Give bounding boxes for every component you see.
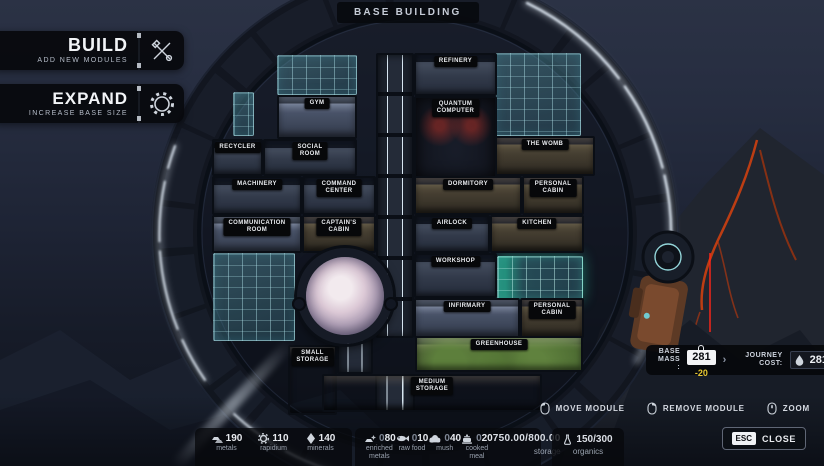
journey-cost-label: JOURNEY COST: (745, 352, 782, 368)
module-label-workshop: WORKSHOP (431, 256, 480, 267)
mass-panel: BASE MASS : 281 -20 › JOURNEY COST: 281 (646, 345, 824, 375)
module-label-captains-cabin: CAPTAIN'S CABIN (316, 218, 361, 236)
resource-mush: 040mush (428, 433, 461, 453)
module-machinery[interactable]: MACHINERY (212, 176, 302, 215)
close-button-label: CLOSE (762, 434, 796, 444)
fuel-drop-icon (795, 355, 804, 366)
control-hints: MOVE MODULEREMOVE MODULEZOOM (540, 402, 810, 415)
minerals-icon (306, 433, 316, 444)
esc-key-badge: ESC (732, 432, 756, 445)
module-label-recycler: RECYCLER (214, 142, 260, 153)
module-solar-panel-mid-left[interactable] (213, 253, 295, 341)
module-solar-panel-top-right[interactable] (495, 53, 581, 136)
module-label-infirmary: INFIRMARY (444, 301, 491, 312)
resource-minerals-value: 140 (319, 433, 336, 444)
build-button-sublabel: ADD NEW MODULES (37, 57, 128, 64)
resource-minerals: 140minerals (297, 433, 344, 453)
resource-enriched-metals: 080enriched metals (363, 433, 396, 461)
resource-cooked-meal: 020cooked meal (461, 433, 493, 461)
resource-minerals-label: minerals (307, 445, 333, 453)
page-title: BASE BUILDING (337, 2, 479, 23)
module-recycler[interactable]: RECYCLER (212, 139, 263, 176)
base-mass-badge: 281 -20 (687, 350, 715, 365)
resource-enriched-metals-value: 080 (379, 433, 396, 444)
organics-value: 150/300 (576, 434, 612, 445)
close-button[interactable]: ESC CLOSE (722, 427, 806, 450)
module-workshop[interactable]: WORKSHOP (414, 253, 497, 298)
storage-label: storage (493, 447, 561, 456)
module-label-dormitory: DORMITORY (443, 179, 493, 190)
resource-mush-label: mush (436, 445, 453, 453)
expand-button[interactable]: EXPAND INCREASE BASE SIZE (0, 84, 184, 123)
gear-icon (138, 84, 184, 123)
build-button-text: BUILD ADD NEW MODULES (0, 31, 138, 70)
resource-cooked-meal-value: 020 (476, 433, 493, 444)
journey-cost-value: 281 (810, 354, 824, 366)
resource-rapidium-value: 110 (272, 433, 288, 444)
hint-remove-module-label: REMOVE MODULE (663, 404, 745, 413)
porthole-mount-right (384, 297, 398, 311)
module-label-greenhouse: GREENHOUSE (471, 339, 528, 350)
expand-button-sublabel: INCREASE BASE SIZE (29, 110, 128, 117)
resource-metals-label: metals (216, 445, 237, 453)
module-label-quantum-computer: QUANTUM COMPUTER (432, 99, 480, 117)
observation-porthole[interactable] (297, 248, 393, 344)
base-building-screen: { "title": "BASE BUILDING", "left_menu":… (0, 0, 824, 466)
module-airlock[interactable]: AIRLOCK (414, 215, 490, 253)
base-mass-label: BASE MASS : (658, 348, 680, 372)
module-label-small-storage: SMALL STORAGE (291, 348, 333, 366)
module-refinery[interactable]: REFINERY (414, 53, 497, 96)
rapidium-icon (258, 433, 269, 444)
enriched-metals-icon (363, 434, 376, 444)
module-kitchen[interactable]: KITCHEN (490, 215, 584, 253)
mouse-right-icon (647, 402, 657, 415)
module-gym[interactable]: GYM (277, 95, 357, 139)
resource-cooked-meal-label: cooked meal (461, 445, 493, 461)
module-label-refinery: REFINERY (434, 56, 477, 67)
flask-icon (563, 434, 572, 445)
module-solar-panel-workshop-right[interactable] (497, 256, 583, 300)
module-infirmary[interactable]: INFIRMARY (414, 298, 520, 338)
storage-value: 750.00/800.00 (493, 433, 561, 444)
base-mass-value: 281 (692, 351, 710, 363)
resource-panel-secondary: 080enriched metals010raw food040mush020c… (355, 428, 541, 466)
chevron-right-icon: › (723, 354, 727, 366)
resource-rapidium: 110rapidium (250, 433, 297, 453)
hint-zoom-label: ZOOM (783, 404, 810, 413)
module-personal-cabin-lower[interactable]: PERSONAL CABIN (520, 298, 584, 338)
module-greenhouse[interactable]: GREENHOUSE (415, 336, 583, 372)
module-social-room[interactable]: SOCIAL ROOM (263, 139, 357, 176)
build-button-label: BUILD (68, 36, 128, 55)
resource-metals-value: 190 (226, 433, 243, 444)
mush-icon (428, 434, 441, 443)
resource-mush-value: 040 (444, 433, 461, 444)
build-button[interactable]: BUILD ADD NEW MODULES (0, 31, 184, 70)
hint-remove-module[interactable]: REMOVE MODULE (647, 402, 745, 415)
module-dormitory[interactable]: DORMITORY (414, 176, 522, 215)
mouse-scroll-icon (767, 402, 777, 415)
resource-metals: 190metals (203, 433, 250, 453)
expand-button-text: EXPAND INCREASE BASE SIZE (0, 84, 138, 123)
expand-button-label: EXPAND (52, 89, 128, 108)
hint-zoom[interactable]: ZOOM (767, 402, 810, 415)
organics-label: organics (573, 447, 603, 456)
module-personal-cabin-upper[interactable]: PERSONAL CABIN (522, 176, 584, 215)
module-label-the-womb: THE WOMB (522, 139, 569, 150)
module-quantum-computer[interactable]: QUANTUM COMPUTER (414, 96, 497, 179)
resource-raw-food: 010raw food (396, 433, 429, 453)
weight-icon (698, 345, 704, 350)
organics-panel: 150/300 organics (552, 428, 624, 466)
resource-raw-food-label: raw food (399, 445, 426, 453)
module-label-medium-storage: MEDIUM STORAGE (411, 377, 453, 395)
mouse-left-icon (540, 402, 550, 415)
module-label-kitchen: KITCHEN (517, 218, 556, 229)
resource-enriched-metals-label: enriched metals (363, 445, 396, 461)
metals-icon (211, 434, 223, 444)
resource-raw-food-value: 010 (412, 433, 429, 444)
resource-panel-primary: 190metals110rapidium140minerals (195, 428, 352, 466)
module-the-womb[interactable]: THE WOMB (495, 136, 595, 176)
hint-move-module[interactable]: MOVE MODULE (540, 402, 625, 415)
module-label-gym: GYM (305, 98, 330, 109)
porthole-mount-left (292, 297, 306, 311)
module-solar-panel-top-left[interactable] (277, 55, 357, 95)
resource-rapidium-label: rapidium (260, 445, 287, 453)
hammer-tools-icon (138, 31, 184, 70)
module-medium-storage[interactable]: MEDIUM STORAGE (322, 374, 542, 412)
module-label-communication-room: COMMUNICATION ROOM (223, 218, 290, 236)
cooked-meal-icon (461, 434, 473, 444)
module-communication-room[interactable]: COMMUNICATION ROOM (212, 215, 302, 253)
module-label-airlock: AIRLOCK (432, 218, 472, 229)
raw-food-icon (396, 434, 409, 443)
module-label-personal-cabin-upper: PERSONAL CABIN (530, 179, 577, 197)
base-mass-delta: -20 (695, 367, 708, 380)
module-command-center[interactable]: COMMAND CENTER (302, 176, 376, 215)
module-label-command-center: COMMAND CENTER (317, 179, 362, 197)
module-label-machinery: MACHINERY (232, 179, 282, 190)
journey-cost-badge: 281 (790, 351, 824, 369)
module-label-social-room: SOCIAL ROOM (292, 142, 327, 160)
module-label-personal-cabin-lower: PERSONAL CABIN (529, 301, 576, 319)
module-solar-panel-left-small[interactable] (233, 92, 254, 136)
hint-move-module-label: MOVE MODULE (556, 404, 625, 413)
